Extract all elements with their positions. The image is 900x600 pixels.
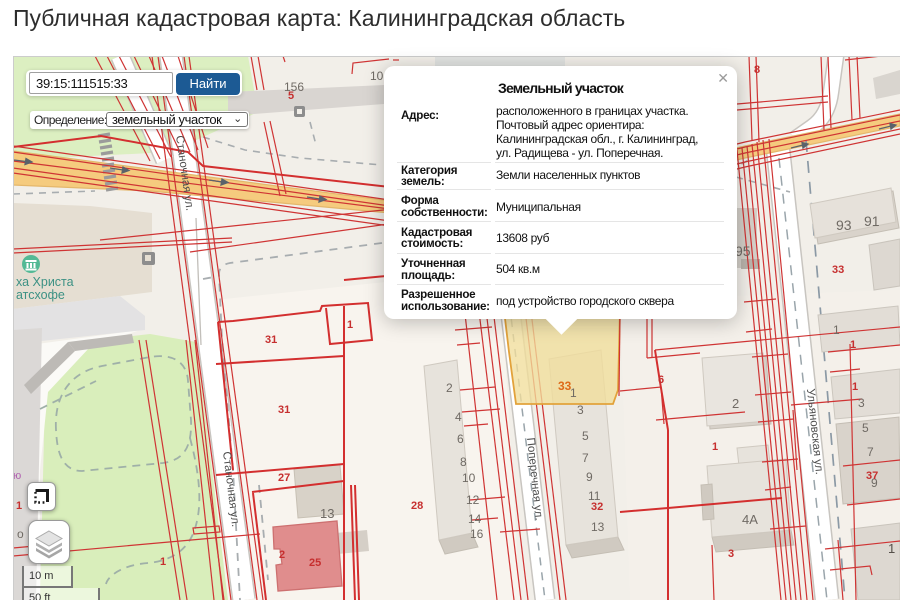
svg-text:33: 33	[832, 264, 844, 276]
svg-text:о: о	[17, 527, 24, 541]
svg-text:37: 37	[866, 470, 878, 482]
svg-text:атсхофе: атсхофе	[16, 288, 65, 302]
svg-text:7: 7	[867, 445, 874, 459]
svg-text:1: 1	[160, 556, 166, 568]
svg-text:6: 6	[457, 432, 464, 446]
svg-text:3: 3	[858, 396, 865, 410]
svg-text:1: 1	[852, 381, 858, 393]
svg-text:1: 1	[888, 541, 895, 556]
svg-text:93: 93	[836, 217, 852, 233]
svg-text:32: 32	[591, 501, 603, 513]
svg-text:5: 5	[582, 429, 589, 443]
svg-text:6: 6	[658, 374, 664, 386]
svg-text:1: 1	[712, 441, 718, 453]
svg-text:1: 1	[347, 319, 353, 331]
svg-text:3: 3	[577, 403, 584, 417]
svg-text:4: 4	[455, 410, 462, 424]
svg-text:12: 12	[466, 493, 480, 507]
svg-text:5: 5	[288, 90, 294, 102]
svg-text:8: 8	[754, 64, 760, 76]
svg-text:4A: 4A	[742, 512, 758, 527]
svg-text:16: 16	[470, 527, 484, 541]
svg-text:31: 31	[278, 404, 290, 416]
svg-text:25: 25	[309, 557, 321, 569]
svg-text:10: 10	[370, 69, 384, 83]
svg-text:2: 2	[446, 381, 453, 395]
svg-text:ю: ю	[13, 470, 21, 482]
svg-text:ха Христа: ха Христа	[16, 275, 74, 289]
svg-text:27: 27	[278, 472, 290, 484]
svg-text:1: 1	[16, 500, 22, 512]
svg-text:1: 1	[850, 339, 856, 351]
svg-text:13: 13	[320, 506, 334, 521]
svg-text:1: 1	[833, 323, 840, 337]
svg-text:7: 7	[582, 451, 589, 465]
svg-text:91: 91	[864, 213, 880, 229]
svg-text:10: 10	[462, 471, 476, 485]
svg-text:2: 2	[279, 549, 285, 561]
svg-text:28: 28	[411, 500, 423, 512]
svg-text:5: 5	[862, 421, 869, 435]
svg-text:13: 13	[591, 520, 605, 534]
svg-text:14: 14	[468, 512, 482, 526]
svg-text:8: 8	[460, 455, 467, 469]
svg-text:2: 2	[732, 396, 739, 411]
svg-text:9: 9	[586, 470, 593, 484]
svg-text:95: 95	[735, 243, 751, 259]
svg-text:31: 31	[265, 334, 277, 346]
svg-text:3: 3	[728, 548, 734, 560]
svg-text:33: 33	[558, 379, 572, 393]
